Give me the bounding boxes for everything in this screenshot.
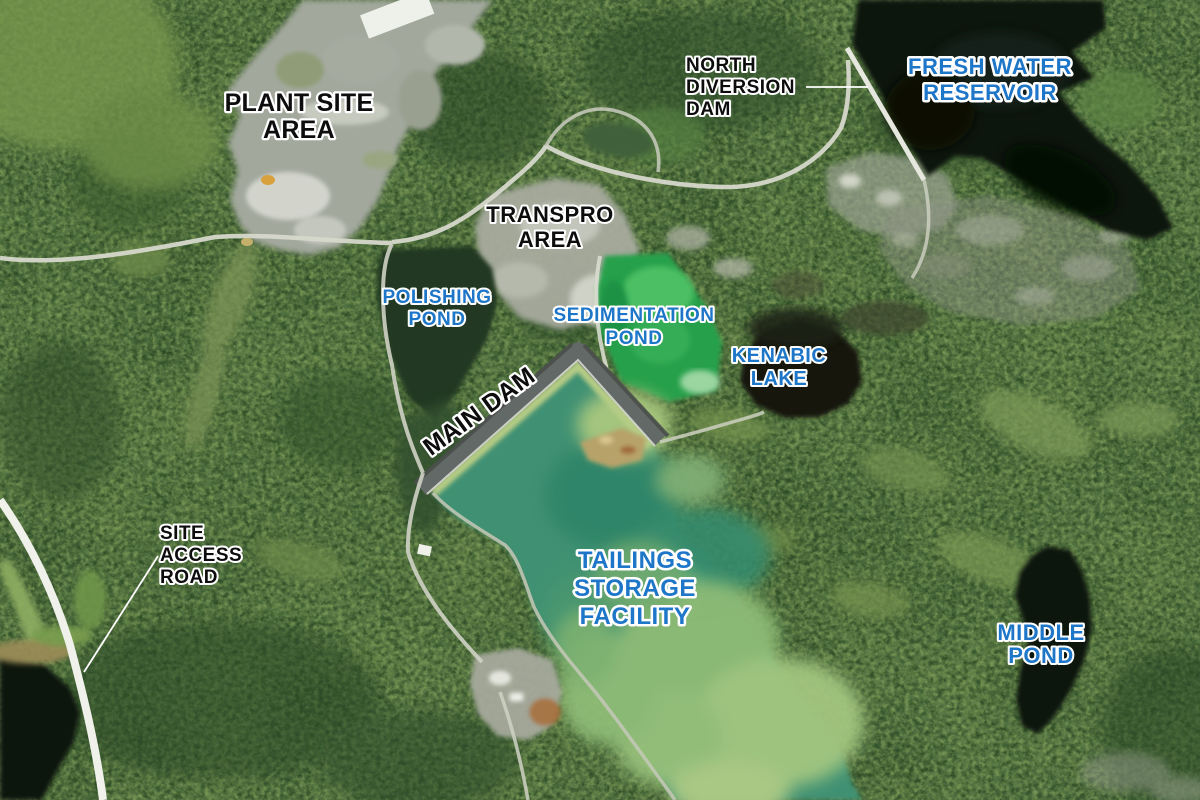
svg-text:AREA: AREA [518,227,582,252]
svg-text:RESERVOIR: RESERVOIR [923,80,1057,105]
svg-text:AREA: AREA [263,116,335,144]
svg-text:TAILINGS: TAILINGS [578,547,692,574]
svg-text:DIVERSION: DIVERSION [686,77,795,98]
svg-text:MIDDLE: MIDDLE [997,620,1084,645]
svg-text:DAM: DAM [686,99,731,120]
svg-text:SITE: SITE [160,523,204,544]
svg-text:POLISHING: POLISHING [382,287,491,308]
svg-text:KENABIC: KENABIC [732,345,827,367]
svg-text:SEDIMENTATION: SEDIMENTATION [554,305,715,326]
svg-text:TRANSPRO: TRANSPRO [486,202,613,227]
svg-text:NORTH: NORTH [686,55,756,76]
svg-text:POND: POND [409,309,466,330]
svg-text:POND: POND [606,328,663,349]
svg-text:ROAD: ROAD [160,567,218,588]
svg-text:FRESH WATER: FRESH WATER [908,54,1072,79]
svg-text:STORAGE: STORAGE [574,575,696,602]
svg-text:FACILITY: FACILITY [580,603,691,630]
svg-text:POND: POND [1008,643,1074,668]
svg-text:ACCESS: ACCESS [160,545,242,566]
svg-text:PLANT SITE: PLANT SITE [225,89,374,117]
svg-text:LAKE: LAKE [751,368,807,390]
